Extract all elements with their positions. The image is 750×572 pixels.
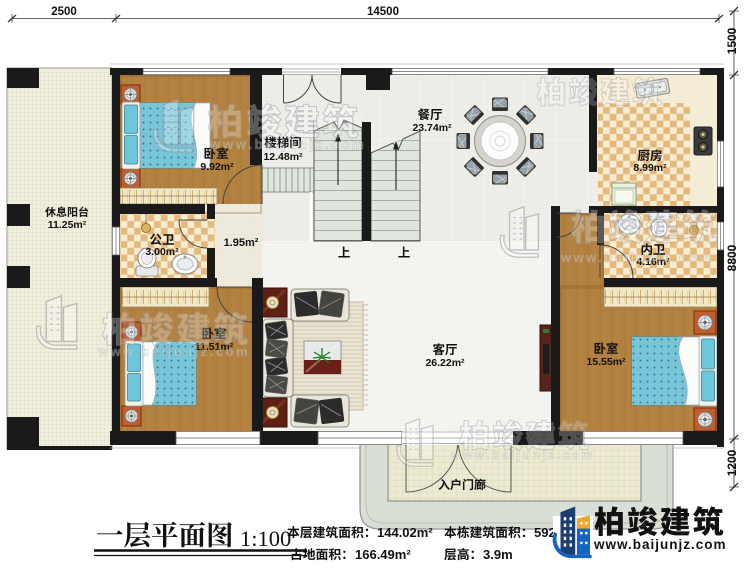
svg-text:3.9m: 3.9m — [483, 547, 513, 562]
svg-text:166.49m²: 166.49m² — [355, 547, 411, 562]
svg-text:2500: 2500 — [51, 6, 77, 18]
svg-text:3.00m²: 3.00m² — [145, 246, 179, 258]
svg-text:www.baijunjz.com: www.baijunjz.com — [560, 250, 713, 265]
svg-text:15.55m²: 15.55m² — [586, 356, 626, 368]
svg-text:12.48m²: 12.48m² — [263, 151, 303, 163]
svg-text:9.92m²: 9.92m² — [200, 161, 234, 173]
svg-text:www.baijunjz.com: www.baijunjz.com — [593, 537, 727, 552]
svg-text:www.baijunjz.com: www.baijunjz.com — [209, 137, 367, 152]
svg-text:www.baijunjz.com: www.baijunjz.com — [97, 344, 250, 359]
svg-text:www.baijunjz.com: www.baijunjz.com — [450, 448, 595, 462]
svg-text:1200: 1200 — [725, 449, 739, 476]
svg-text:23.74m²: 23.74m² — [412, 122, 452, 134]
svg-text:11.25m²: 11.25m² — [48, 219, 87, 231]
svg-text:1500: 1500 — [725, 27, 739, 54]
svg-text:144.02m²: 144.02m² — [377, 525, 433, 540]
svg-text:8.99m²: 8.99m² — [633, 162, 667, 174]
svg-text:14500: 14500 — [367, 6, 399, 18]
svg-text:1:100: 1:100 — [240, 526, 291, 551]
svg-text:26.22m²: 26.22m² — [425, 357, 465, 369]
svg-text:8800: 8800 — [725, 244, 739, 271]
svg-text:1.95m²: 1.95m² — [224, 237, 259, 249]
